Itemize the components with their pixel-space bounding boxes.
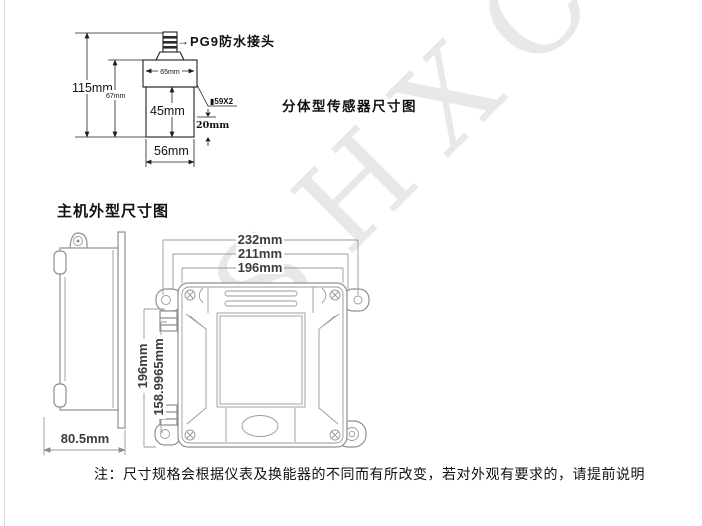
dim-label-232mm: 232mm xyxy=(238,232,283,247)
page: SHXCK 115mm xyxy=(0,0,702,526)
dim-label-45mm: 45mm xyxy=(150,104,185,118)
dim-label-196mm-width: 196mm xyxy=(238,260,283,275)
page-border-line xyxy=(4,0,5,526)
front-enclosure xyxy=(178,283,347,447)
dim-label-80-5mm: 80.5mm xyxy=(61,431,109,446)
dim-label-56mm: 56mm xyxy=(154,144,189,158)
gland-band xyxy=(164,41,177,44)
sensor-drawing-title: 分体型传感器尺寸图 xyxy=(282,98,417,114)
arrow-right-icon: → xyxy=(177,34,189,48)
main-unit-dimension-drawing: 80.5mm xyxy=(30,225,390,460)
side-top-bump xyxy=(54,251,66,274)
sensor-dimension-drawing: 115mm 67mm 65mm 45mm ▮59X2 xyxy=(40,15,460,175)
side-view: 80.5mm xyxy=(44,232,125,455)
dim-label-20mm: 20mm xyxy=(196,120,229,131)
dim-label-67mm: 67mm xyxy=(106,93,126,100)
side-back-plate xyxy=(118,232,125,428)
dim-label-65mm: 65mm xyxy=(160,69,180,76)
connector-callout: → PG9防水接头 xyxy=(177,34,275,49)
footnote: 注：尺寸规格会根据仪表及换能器的不同而有所改变，若对外观有要求的，请提前说明 xyxy=(94,464,645,484)
side-bottom-bump xyxy=(54,384,66,407)
thread-callout: ▮59X2 xyxy=(197,85,237,106)
dim-115mm: 115mm xyxy=(70,33,163,137)
dim-67mm: 67mm xyxy=(104,60,143,137)
thread-label: ▮59X2 xyxy=(210,97,234,106)
main-unit-drawing-title: 主机外型尺寸图 xyxy=(57,200,169,221)
front-view: 232mm 211mm 196mm 196mm 158.9965 xyxy=(135,232,369,447)
dim-label-158mm-height: 158.9965mm xyxy=(151,338,166,415)
dim-65mm: 65mm xyxy=(146,66,194,76)
dim-158mm-height: 158.9965mm xyxy=(151,322,167,432)
connector-label: PG9防水接头 xyxy=(190,34,275,49)
gland-band xyxy=(164,46,177,49)
dim-45mm: 45mm xyxy=(149,87,185,137)
dim-label-211mm: 211mm xyxy=(238,246,282,261)
dim-56mm: 56mm xyxy=(146,139,194,167)
side-body xyxy=(60,248,118,410)
gland-band xyxy=(164,36,177,39)
dim-label-196mm-height: 196mm xyxy=(135,344,150,389)
dim-20mm: 20mm xyxy=(196,109,229,146)
gland-neck xyxy=(156,52,184,60)
dim-196mm-width: 196mm xyxy=(182,260,343,283)
dim-80-5mm: 80.5mm xyxy=(44,417,125,455)
ear-bottom-left xyxy=(155,423,181,445)
